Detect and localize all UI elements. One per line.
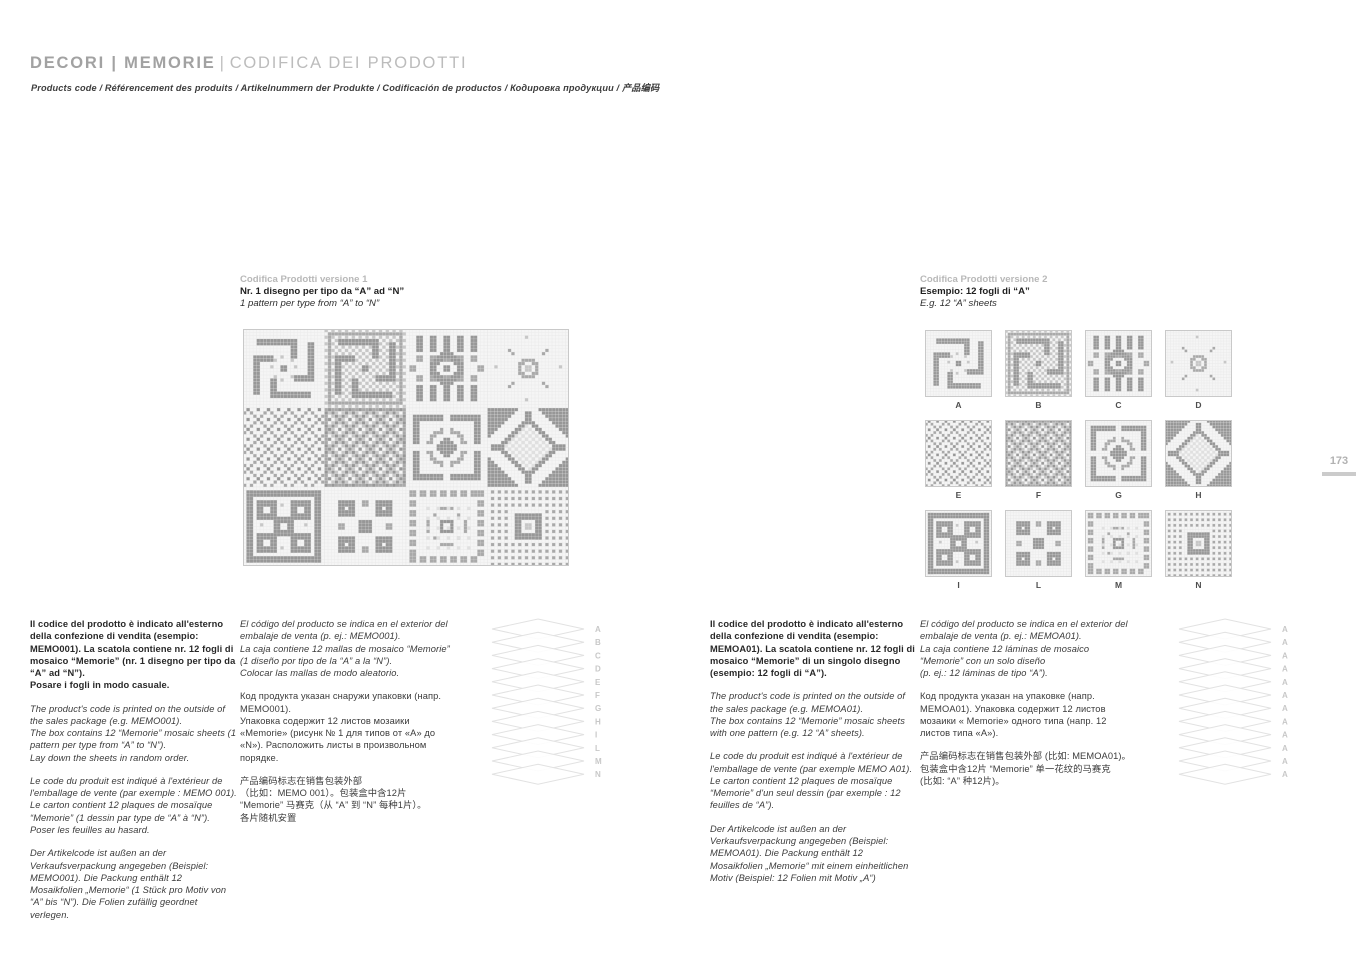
paragraph-fr: Le code du produit est indiqué à l'extér… bbox=[30, 775, 237, 836]
stack-sheet-label: L bbox=[595, 744, 600, 753]
mosaic-pattern-canvas-B bbox=[1005, 330, 1072, 397]
paragraph-it: Il codice del prodotto è indicato all'es… bbox=[710, 618, 917, 679]
mosaic-pattern-canvas-M bbox=[1085, 510, 1152, 577]
tile-label-H: H bbox=[1165, 490, 1232, 500]
version1-heading: Codifica Prodotti versione 1 Nr. 1 diseg… bbox=[240, 274, 580, 311]
mosaic-pattern-canvas-C bbox=[1085, 330, 1152, 397]
tile-label-N: N bbox=[1165, 580, 1232, 590]
paragraph-ru: Код продукта указан снаружи упаковки (на… bbox=[240, 690, 452, 764]
paragraph-it: Il codice del prodotto è indicato all'es… bbox=[30, 618, 237, 692]
paragraph-de: Der Artikelcode ist außen an der Verkauf… bbox=[30, 847, 237, 921]
stack-sheet-label: A bbox=[1282, 731, 1288, 740]
tile-label-E: E bbox=[925, 490, 992, 500]
mosaic-pattern-canvas-A bbox=[925, 330, 992, 397]
stack-sheet-label: A bbox=[1282, 757, 1288, 766]
tile-label-M: M bbox=[1085, 580, 1152, 590]
page-number: 173 bbox=[1322, 455, 1356, 476]
version2-subtitle: E.g. 12 “A” sheets bbox=[920, 298, 1260, 310]
stack-sheet-label: A bbox=[1282, 651, 1288, 660]
stack-sheet-label: G bbox=[595, 704, 601, 713]
mosaic-tile-grid: ABCDEFGHILMN bbox=[925, 330, 1232, 590]
version1-text-column-1: Il codice del prodotto è indicato all'es… bbox=[30, 618, 237, 932]
mosaic-tile-L: L bbox=[1005, 510, 1072, 590]
stack-sheet-label: A bbox=[1282, 744, 1288, 753]
stack-sheet-label: A bbox=[1282, 717, 1288, 726]
paragraph-de: Der Artikelcode ist außen an der Verkauf… bbox=[710, 823, 917, 884]
version2-text-column-2: El código del producto se indica en el e… bbox=[920, 618, 1132, 798]
mosaic-tile-M: M bbox=[1085, 510, 1152, 590]
page-number-value: 173 bbox=[1330, 455, 1348, 467]
paragraph-es: El código del producto se indica en el e… bbox=[920, 618, 1132, 679]
sheet-stack-diagram-v1: ABCDEFGHILMN bbox=[485, 614, 617, 796]
stack-sheet bbox=[1179, 764, 1271, 784]
paragraph-es: El código del producto se indica en el e… bbox=[240, 618, 452, 679]
version1-title: Nr. 1 disegno per tipo da “A” ad “N” bbox=[240, 286, 580, 298]
tile-label-A: A bbox=[925, 400, 992, 410]
stack-sheet-label: A bbox=[1282, 770, 1288, 779]
stack-sheet-label: A bbox=[1282, 638, 1288, 647]
mosaic-pattern-canvas-F bbox=[1005, 420, 1072, 487]
stack-sheet-label: C bbox=[595, 651, 601, 660]
catalog-page: { "header": { "title_primary": "DECORI |… bbox=[0, 0, 1356, 959]
title-secondary: CODIFICA DEI PRODOTTI bbox=[230, 54, 468, 72]
paragraph-ru: Код продукта указан на упаковке (напр. M… bbox=[920, 690, 1132, 739]
mosaic-pattern-canvas-I bbox=[925, 510, 992, 577]
page-title: DECORI | MEMORIE|CODIFICA DEI PRODOTTI bbox=[30, 54, 659, 73]
mosaic-pattern-canvas-N bbox=[1165, 510, 1232, 577]
mosaic-sheet-canvas bbox=[243, 329, 569, 566]
stack-sheet-label: D bbox=[595, 665, 601, 674]
version2-heading: Codifica Prodotti versione 2 Esempio: 12… bbox=[920, 274, 1260, 311]
paragraph-zh: 产品编码标志在销售包装外部 (比如: MEMOA01)。 包装盒中含12片 “M… bbox=[920, 750, 1132, 787]
title-separator: | bbox=[216, 54, 230, 72]
tile-label-I: I bbox=[925, 580, 992, 590]
stack-sheet-label: F bbox=[595, 691, 600, 700]
title-primary: DECORI | MEMORIE bbox=[30, 54, 216, 72]
paragraph-fr: Le code du produit est indiqué à l'extér… bbox=[710, 750, 917, 811]
stack-sheet bbox=[492, 764, 584, 784]
page-number-rule bbox=[1322, 472, 1356, 476]
mosaic-tile-C: C bbox=[1085, 330, 1152, 410]
version2-title: Esempio: 12 fogli di “A” bbox=[920, 286, 1260, 298]
paragraph-zh: 产品编码标志在销售包装外部 （比如：MEMO 001）。包装盒中含12片 “Me… bbox=[240, 775, 452, 824]
tile-label-G: G bbox=[1085, 490, 1152, 500]
stack-sheet-label: A bbox=[1282, 704, 1288, 713]
mosaic-pattern-canvas-G bbox=[1085, 420, 1152, 487]
stack-sheet-label: A bbox=[595, 625, 601, 634]
mosaic-pattern-canvas-E bbox=[925, 420, 992, 487]
mosaic-pattern-canvas-D bbox=[1165, 330, 1232, 397]
mosaic-tile-I: I bbox=[925, 510, 992, 590]
paragraph-en: The product's code is printed on the out… bbox=[30, 703, 237, 764]
stack-sheet-label: I bbox=[595, 731, 597, 740]
mosaic-tile-F: F bbox=[1005, 420, 1072, 500]
mosaic-tile-E: E bbox=[925, 420, 992, 500]
mosaic-tile-G: G bbox=[1085, 420, 1152, 500]
stack-sheet-label: E bbox=[595, 678, 601, 687]
mosaic-tile-B: B bbox=[1005, 330, 1072, 410]
tile-label-L: L bbox=[1005, 580, 1072, 590]
sheet-stack-diagram-v2: AAAAAAAAAAAA bbox=[1175, 614, 1307, 796]
stack-sheet-label: A bbox=[1282, 678, 1288, 687]
mosaic-tile-N: N bbox=[1165, 510, 1232, 590]
version1-subtitle: 1 pattern per type from “A” to “N” bbox=[240, 298, 580, 310]
stack-sheet-label: A bbox=[1282, 625, 1288, 634]
stack-sheet-label: N bbox=[595, 770, 601, 779]
stack-sheet-label: M bbox=[595, 757, 602, 766]
page-header: DECORI | MEMORIE|CODIFICA DEI PRODOTTI P… bbox=[30, 54, 659, 94]
paragraph-en: The product's code is printed on the out… bbox=[710, 690, 917, 739]
version1-kicker: Codifica Prodotti versione 1 bbox=[240, 274, 580, 286]
mosaic-tile-H: H bbox=[1165, 420, 1232, 500]
page-subtitle: Products code / Référencement des produi… bbox=[31, 80, 659, 94]
version2-kicker: Codifica Prodotti versione 2 bbox=[920, 274, 1260, 286]
mosaic-tile-D: D bbox=[1165, 330, 1232, 410]
mosaic-tile-A: A bbox=[925, 330, 992, 410]
version1-text-column-2: El código del producto se indica en el e… bbox=[240, 618, 452, 835]
stack-sheet-label: B bbox=[595, 638, 601, 647]
stack-sheet-label: H bbox=[595, 717, 601, 726]
mosaic-pattern-canvas-H bbox=[1165, 420, 1232, 487]
version2-text-column-1: Il codice del prodotto è indicato all'es… bbox=[710, 618, 917, 895]
stack-sheet-label: A bbox=[1282, 691, 1288, 700]
tile-label-D: D bbox=[1165, 400, 1232, 410]
stack-sheet-label: A bbox=[1282, 665, 1288, 674]
tile-label-F: F bbox=[1005, 490, 1072, 500]
tile-label-C: C bbox=[1085, 400, 1152, 410]
mosaic-pattern-canvas-L bbox=[1005, 510, 1072, 577]
tile-label-B: B bbox=[1005, 400, 1072, 410]
